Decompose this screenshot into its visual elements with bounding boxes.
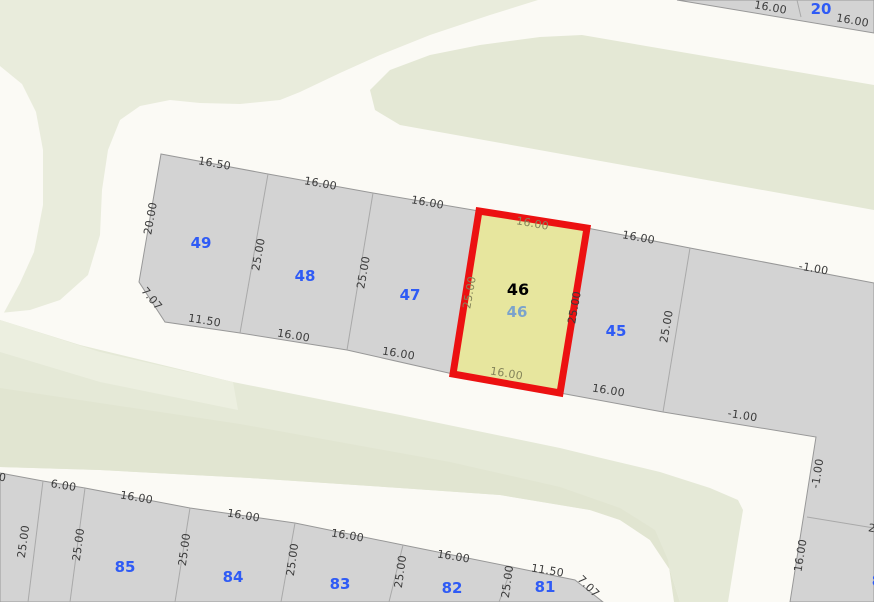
parcel-number-20[interactable]: 20 <box>811 0 832 18</box>
parcel-number-45[interactable]: 45 <box>606 322 627 340</box>
parcel-number-47[interactable]: 47 <box>400 286 421 304</box>
parcel-number-82[interactable]: 82 <box>442 579 463 597</box>
parcel-number-84[interactable]: 84 <box>223 568 244 586</box>
parcel-number-49[interactable]: 49 <box>191 234 212 252</box>
cadastral-map: 16.5016.0016.0016.0016.00-1.0020.007.071… <box>0 0 874 602</box>
cadastral-map-viewport[interactable]: 16.5016.0016.0016.0016.00-1.0020.007.071… <box>0 0 874 602</box>
parcel-number-83[interactable]: 83 <box>330 575 351 593</box>
selected-parcel-number-secondary: 46 <box>507 303 528 321</box>
parcel-number-48[interactable]: 48 <box>295 267 316 285</box>
parcel-number-81[interactable]: 81 <box>535 578 556 596</box>
parcel-number-85[interactable]: 85 <box>115 558 136 576</box>
selected-parcel-number-primary[interactable]: 46 <box>507 280 529 299</box>
